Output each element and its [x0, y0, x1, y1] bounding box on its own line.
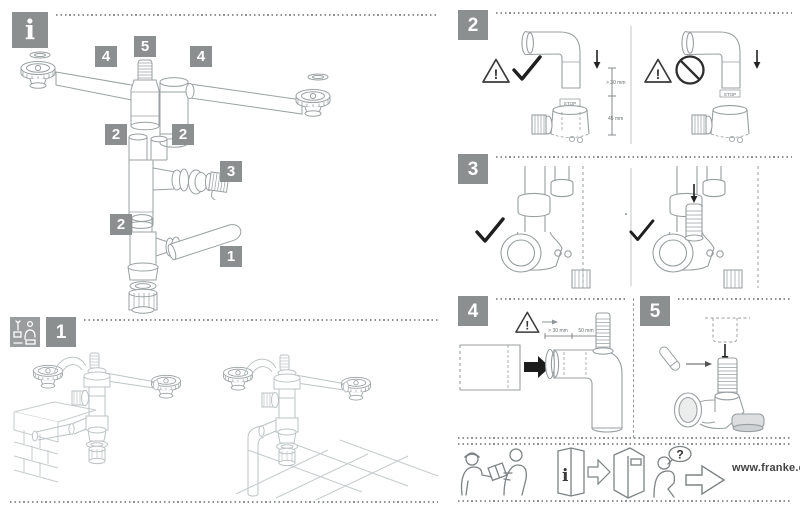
- step4-illustration: > 30 mm 50 mm: [458, 308, 630, 436]
- footer-border-bottom: [458, 500, 792, 502]
- manual-reference-icon: [558, 448, 644, 498]
- part-label-2-left: 2: [105, 124, 127, 145]
- part-label-4-left: 4: [95, 46, 117, 67]
- dishwasher-adapter: [685, 204, 703, 241]
- stop-marking-right: STOP: [724, 92, 736, 97]
- installer-handover-icon: [462, 449, 527, 495]
- step3-illustration: [458, 166, 792, 290]
- lubricant-stick: [658, 345, 682, 372]
- stop-marking-left: STOP: [564, 101, 576, 106]
- step1-border-top: [84, 319, 438, 321]
- part-label-2-bottom: 2: [110, 214, 132, 235]
- dim-upper-label: > 30 mm: [606, 80, 626, 86]
- step2-border-top: [496, 12, 792, 14]
- step1-border-bottom: [10, 501, 438, 503]
- panel-border-top-left: [56, 14, 438, 16]
- prohibition-icon: [677, 57, 704, 84]
- step4-border-top: [496, 298, 628, 300]
- booklet-i-label: i: [562, 466, 569, 486]
- instruction-sheet: ! i: [0, 0, 800, 519]
- dim-free-label: 50 mm: [578, 328, 593, 334]
- website-link[interactable]: www.franke.com: [732, 462, 800, 474]
- dim-lower-label: 45 mm: [608, 116, 623, 122]
- step5-illustration: [640, 308, 792, 436]
- steps45-border-bottom: [458, 437, 792, 439]
- question-mark-label: ?: [676, 448, 683, 462]
- dim-insertion-label: > 30 mm: [548, 328, 568, 334]
- step2-illustration: STOP > 30 mm 45 mm STOP: [458, 22, 792, 150]
- footer-pictograms: i ?: [458, 447, 730, 499]
- apply-arrow: [686, 361, 712, 367]
- part-label-2-right: 2: [172, 124, 194, 145]
- dimension-bracket: [608, 68, 616, 135]
- step3-border-top: [496, 156, 792, 158]
- step4-step5-divider: [633, 298, 634, 438]
- part-label-5: 5: [134, 36, 156, 57]
- question-website-icon: [654, 447, 724, 498]
- step1-illustration: [10, 334, 440, 502]
- part-label-4-right: 4: [190, 46, 212, 67]
- part-label-1: 1: [220, 246, 242, 267]
- footer-border-top: [458, 443, 792, 445]
- part-label-3: 3: [220, 161, 242, 182]
- step5-border-top: [678, 298, 792, 300]
